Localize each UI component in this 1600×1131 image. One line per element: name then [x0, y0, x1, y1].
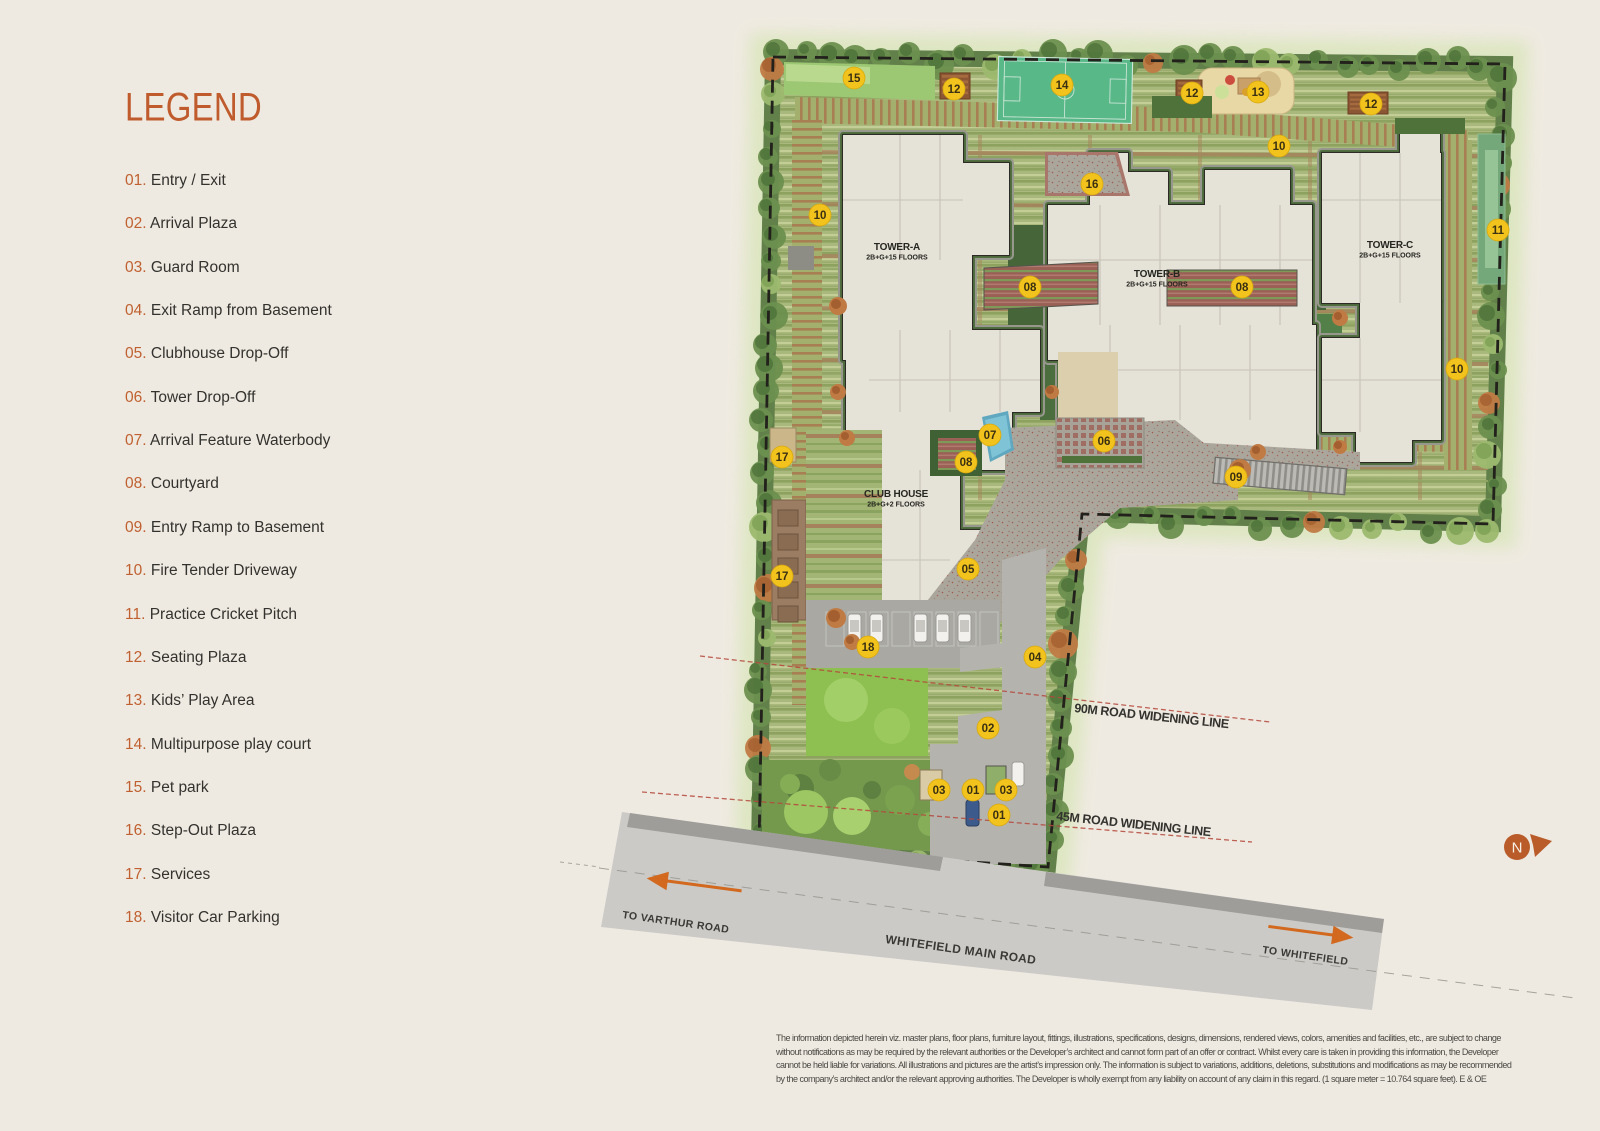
svg-text:08: 08 — [1024, 282, 1037, 294]
svg-text:02: 02 — [982, 723, 995, 735]
svg-text:05: 05 — [962, 564, 975, 576]
svg-text:12: 12 — [1186, 88, 1199, 100]
svg-text:TOWER-C: TOWER-C — [1367, 240, 1413, 251]
svg-text:08: 08 — [1236, 282, 1249, 294]
svg-text:10: 10 — [1273, 141, 1286, 153]
svg-text:45M ROAD WIDENING LINE: 45M ROAD WIDENING LINE — [1056, 809, 1212, 839]
svg-text:2B+G+2 FLOORS: 2B+G+2 FLOORS — [867, 502, 925, 509]
svg-text:08: 08 — [960, 457, 973, 469]
svg-text:16: 16 — [1086, 179, 1099, 191]
svg-text:13: 13 — [1252, 87, 1265, 99]
svg-text:07: 07 — [984, 430, 997, 442]
svg-text:2B+G+15 FLOORS: 2B+G+15 FLOORS — [866, 255, 928, 262]
svg-text:04: 04 — [1029, 652, 1042, 664]
svg-text:01: 01 — [993, 810, 1006, 822]
svg-text:2B+G+15 FLOORS: 2B+G+15 FLOORS — [1359, 253, 1421, 260]
svg-text:2B+G+15 FLOORS: 2B+G+15 FLOORS — [1126, 282, 1188, 289]
svg-text:01: 01 — [967, 785, 980, 797]
svg-text:90M ROAD WIDENING LINE: 90M ROAD WIDENING LINE — [1074, 701, 1230, 731]
svg-text:17: 17 — [776, 452, 789, 464]
svg-text:03: 03 — [1000, 785, 1013, 797]
svg-text:TOWER-B: TOWER-B — [1134, 269, 1180, 280]
svg-text:10: 10 — [1451, 364, 1464, 376]
svg-text:03: 03 — [933, 785, 946, 797]
svg-text:14: 14 — [1056, 80, 1069, 92]
svg-text:TOWER-A: TOWER-A — [874, 242, 920, 253]
svg-text:15: 15 — [848, 73, 861, 85]
svg-text:09: 09 — [1230, 472, 1243, 484]
svg-text:12: 12 — [1365, 99, 1378, 111]
svg-text:12: 12 — [948, 84, 961, 96]
svg-text:18: 18 — [862, 642, 875, 654]
svg-text:11: 11 — [1492, 225, 1505, 237]
svg-text:10: 10 — [814, 210, 827, 222]
svg-text:CLUB HOUSE: CLUB HOUSE — [864, 489, 929, 500]
svg-text:06: 06 — [1098, 436, 1111, 448]
svg-text:17: 17 — [776, 571, 789, 583]
svg-text:N: N — [1512, 840, 1523, 857]
